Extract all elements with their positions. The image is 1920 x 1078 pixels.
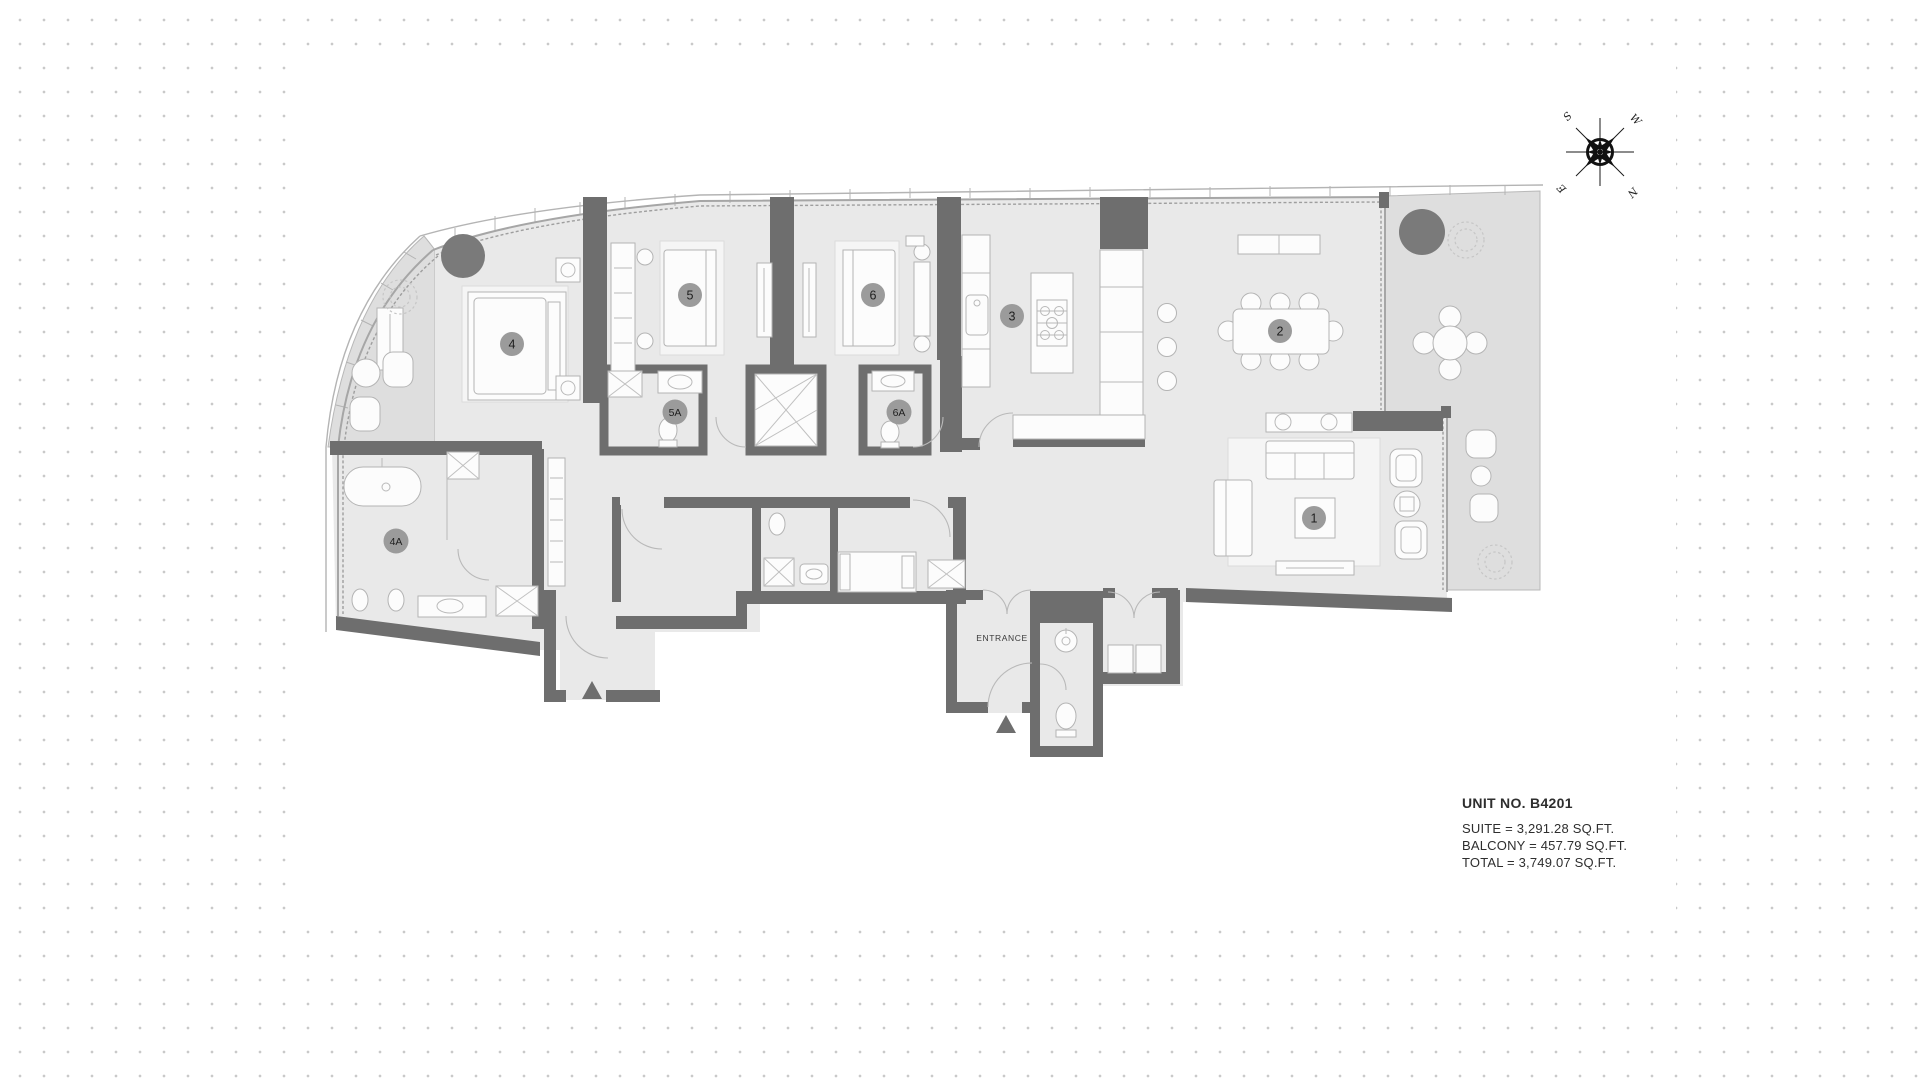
room-label-bedroom-5: 5	[678, 283, 702, 307]
compass-letter-west: W	[1627, 112, 1644, 129]
room-label-bathroom-5a: 5A	[663, 400, 688, 425]
svg-text:2: 2	[1277, 325, 1284, 339]
svg-text:4: 4	[509, 338, 516, 352]
compass-letter-south: S	[1561, 110, 1575, 124]
entrance-label: ENTRANCE	[976, 633, 1028, 643]
room-label-living: 1	[1302, 506, 1326, 530]
total-area-line: TOTAL = 3,749.07 SQ.FT.	[1462, 854, 1627, 871]
planter-right	[1399, 209, 1445, 255]
compass-rose: S W E N	[1555, 110, 1644, 200]
balcony-area-line: BALCONY = 457.79 SQ.FT.	[1462, 837, 1627, 854]
room-label-dining: 2	[1268, 319, 1292, 343]
page-canvas: { "unit_info": { "title": "UNIT NO. B420…	[0, 0, 1920, 1078]
compass-letter-north: N	[1624, 184, 1640, 200]
svg-text:3: 3	[1009, 310, 1016, 324]
room-label-bathroom-4a: 4A	[384, 529, 409, 554]
compass-letter-east: E	[1555, 181, 1570, 196]
svg-text:5A: 5A	[669, 407, 682, 419]
floor-plan-svg: ENTRANCE 1 2 3 4 4A 5 5A	[0, 0, 1920, 1078]
room-label-bedroom-6: 6	[861, 283, 885, 307]
svg-text:6: 6	[870, 289, 877, 303]
unit-info-block: UNIT NO. B4201 SUITE = 3,291.28 SQ.FT. B…	[1462, 795, 1627, 871]
compass-star	[1582, 134, 1617, 169]
svg-text:6A: 6A	[893, 407, 906, 419]
svg-text:4A: 4A	[390, 536, 403, 548]
suite-area-line: SUITE = 3,291.28 SQ.FT.	[1462, 820, 1627, 837]
room-label-bathroom-6a: 6A	[887, 400, 912, 425]
entrance-arrow-main	[996, 715, 1016, 733]
room-label-bedroom-4: 4	[500, 332, 524, 356]
svg-text:1: 1	[1311, 512, 1318, 526]
unit-number-title: UNIT NO. B4201	[1462, 795, 1627, 811]
planter-left	[441, 234, 485, 278]
svg-text:5: 5	[687, 289, 694, 303]
room-label-kitchen: 3	[1000, 304, 1024, 328]
hall-closet-shelving	[755, 374, 817, 446]
